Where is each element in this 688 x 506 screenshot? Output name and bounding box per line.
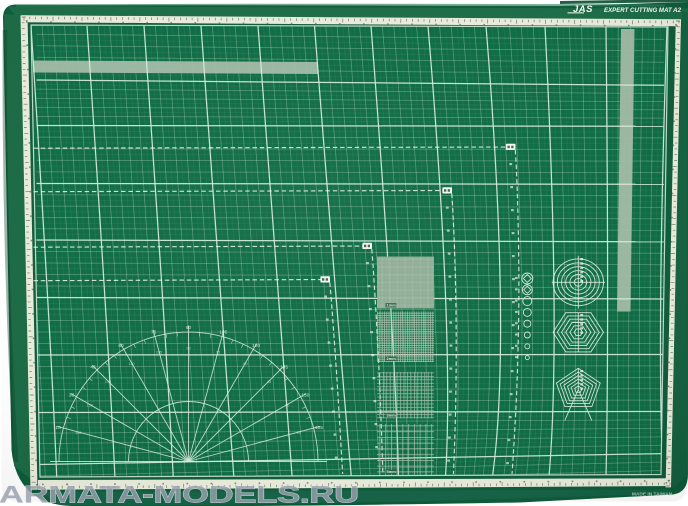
svg-text:ARMATA-MODELS.RU: ARMATA-MODELS.RU (0, 482, 359, 506)
